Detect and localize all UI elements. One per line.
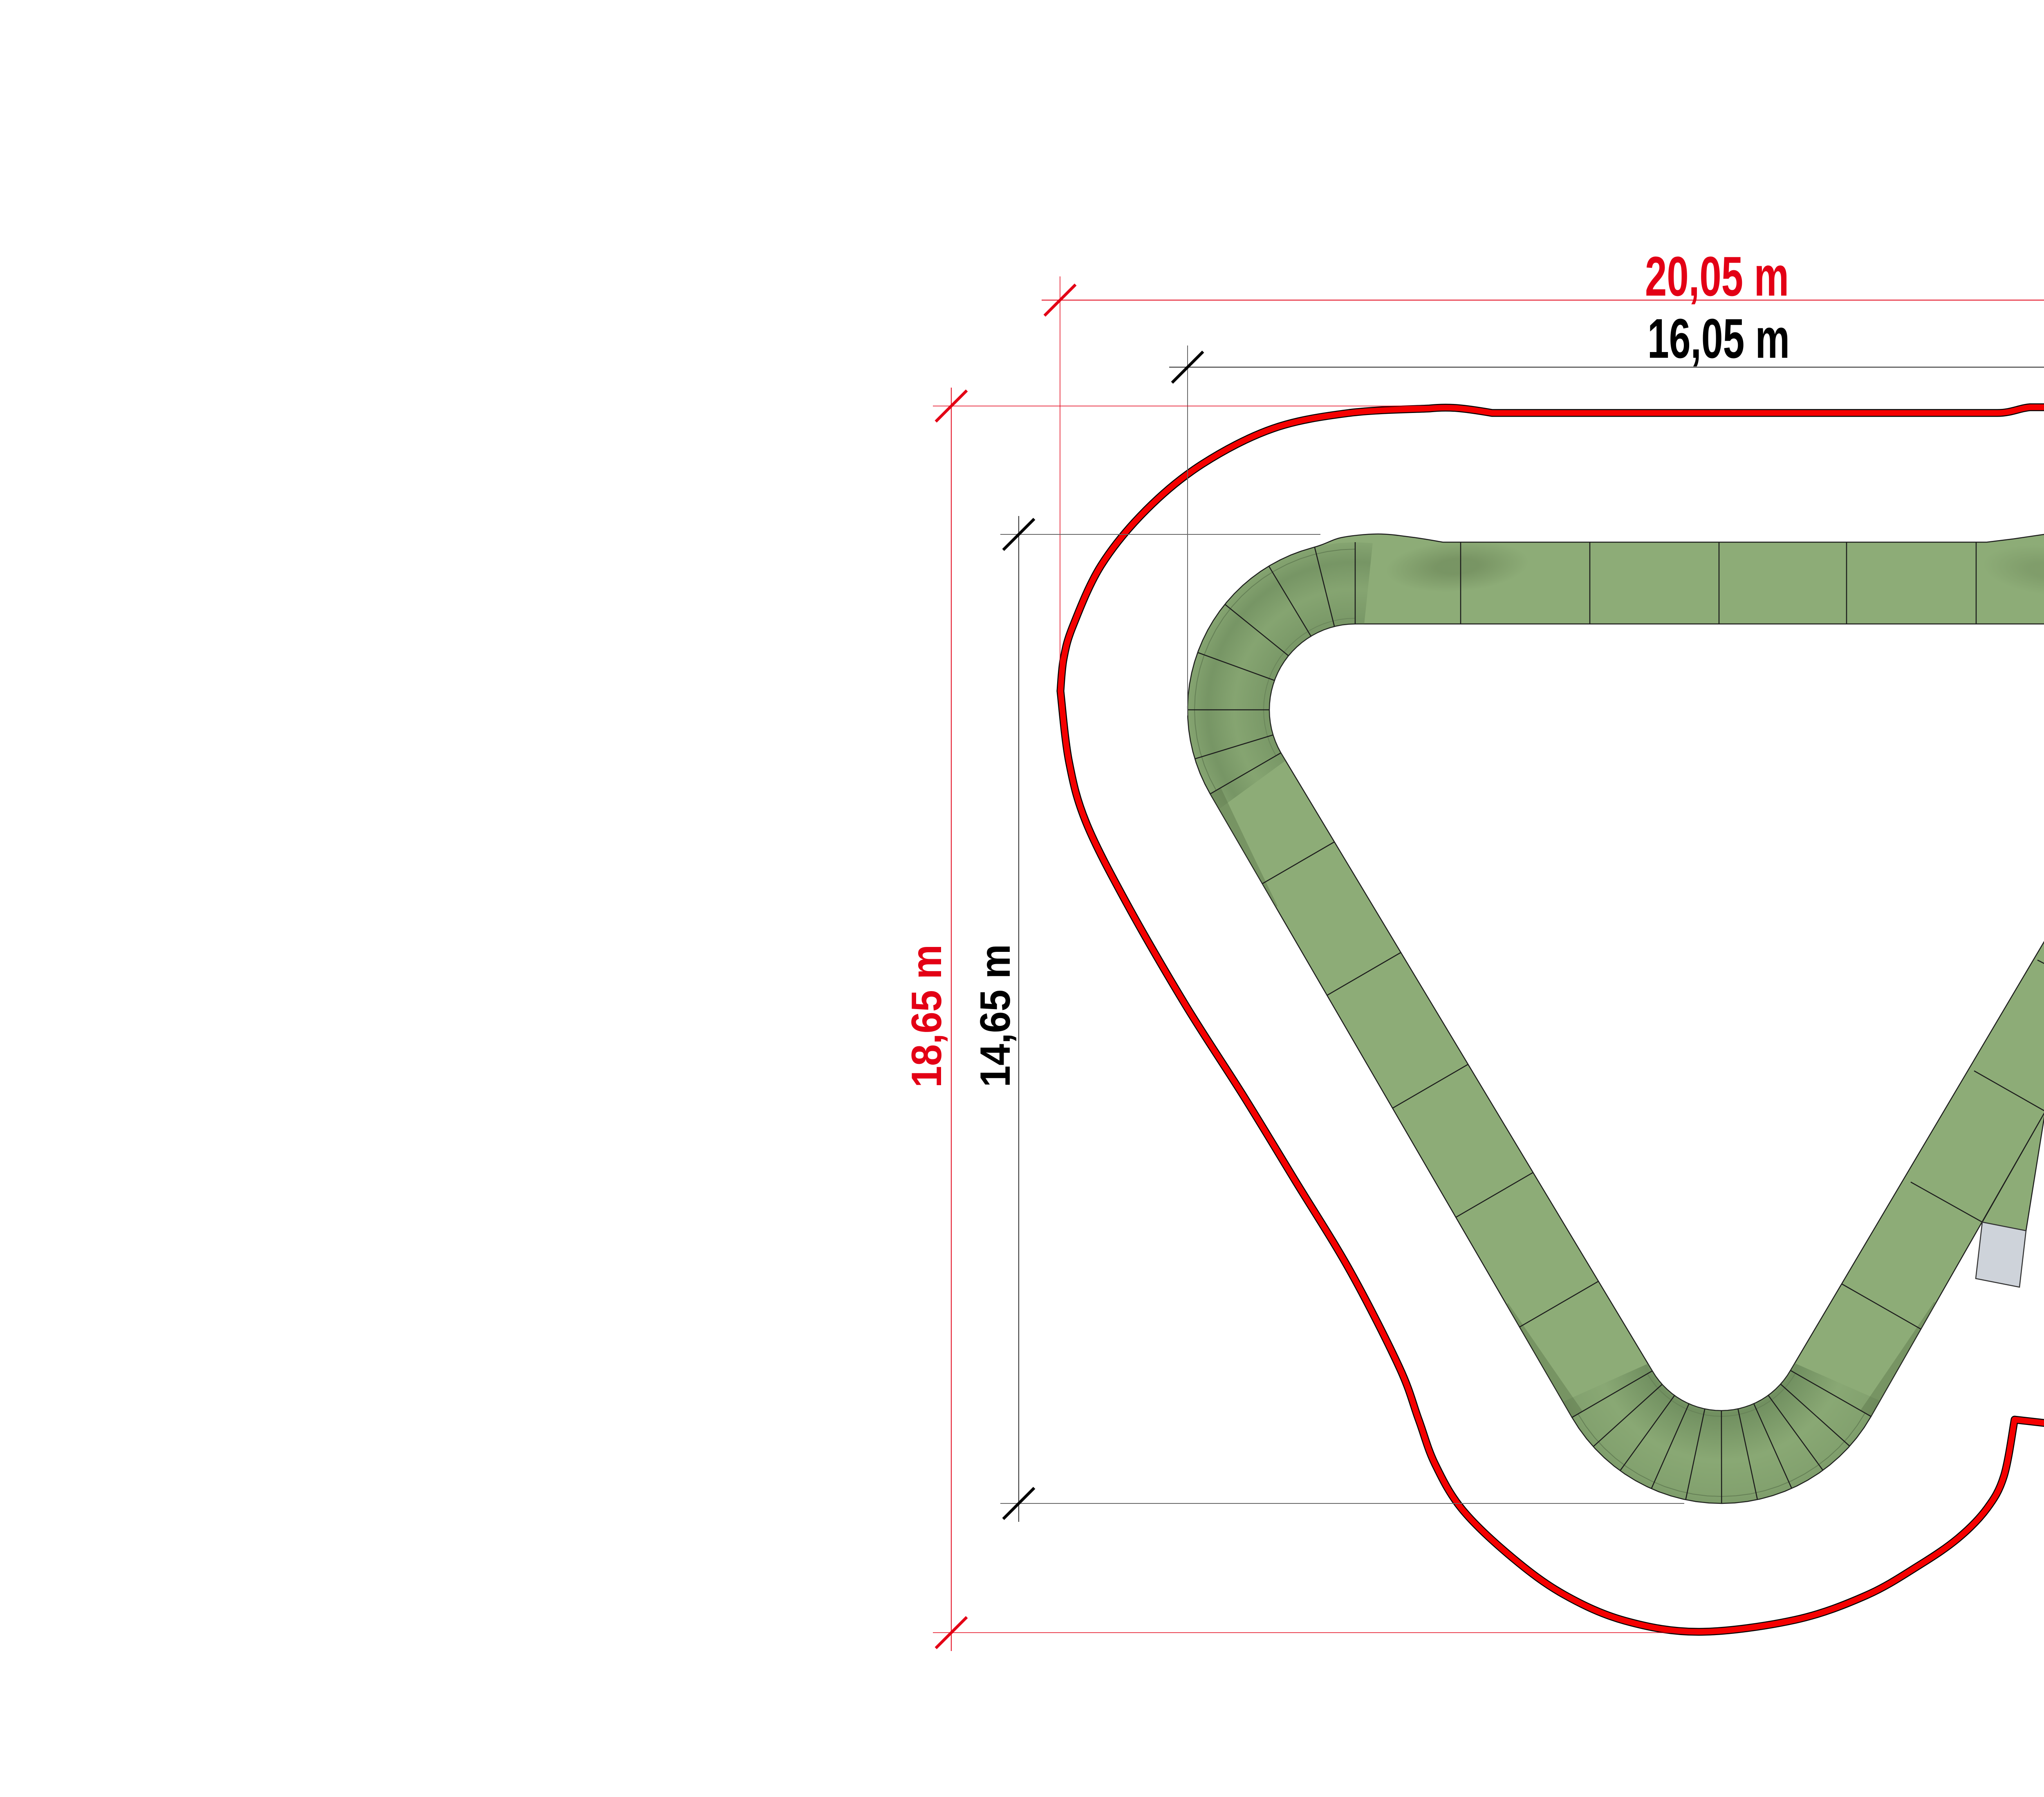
svg-text:18,65 m: 18,65 m: [903, 944, 950, 1088]
svg-text:14,65 m: 14,65 m: [972, 944, 1019, 1087]
svg-text:20,05 m: 20,05 m: [1645, 245, 1789, 308]
svg-text:16,05 m: 16,05 m: [1647, 307, 1790, 370]
